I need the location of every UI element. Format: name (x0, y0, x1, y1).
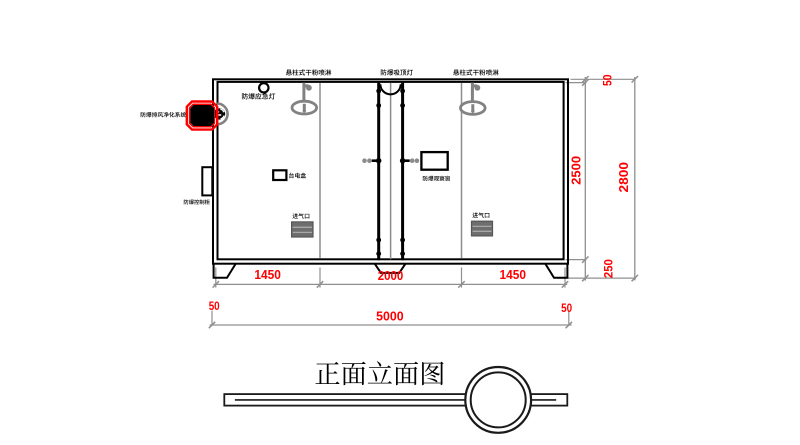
svg-text:50: 50 (602, 75, 615, 87)
svg-text:5000: 5000 (376, 308, 404, 323)
svg-text:2500: 2500 (569, 156, 584, 185)
svg-text:250: 250 (602, 259, 616, 278)
svg-text:1450: 1450 (254, 267, 281, 282)
svg-text:50: 50 (561, 302, 572, 315)
svg-text:2000: 2000 (378, 268, 404, 283)
svg-text:50: 50 (209, 300, 220, 313)
svg-text:2800: 2800 (616, 162, 631, 193)
svg-text:1450: 1450 (500, 267, 527, 282)
